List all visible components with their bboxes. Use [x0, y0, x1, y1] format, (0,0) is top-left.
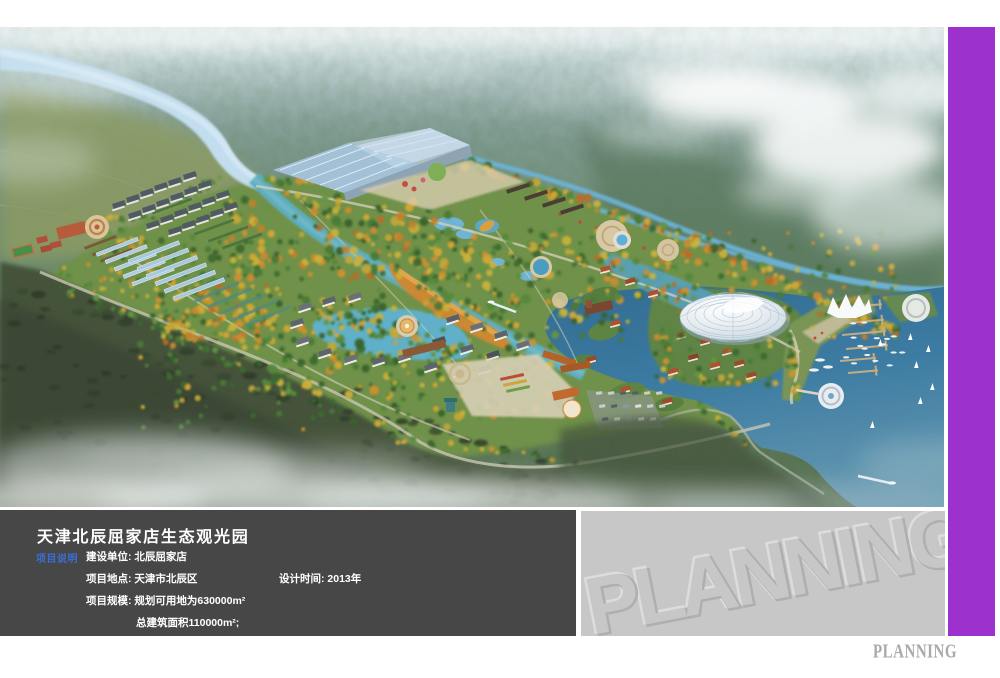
- svg-text:PLANNING: PLANNING: [581, 511, 945, 636]
